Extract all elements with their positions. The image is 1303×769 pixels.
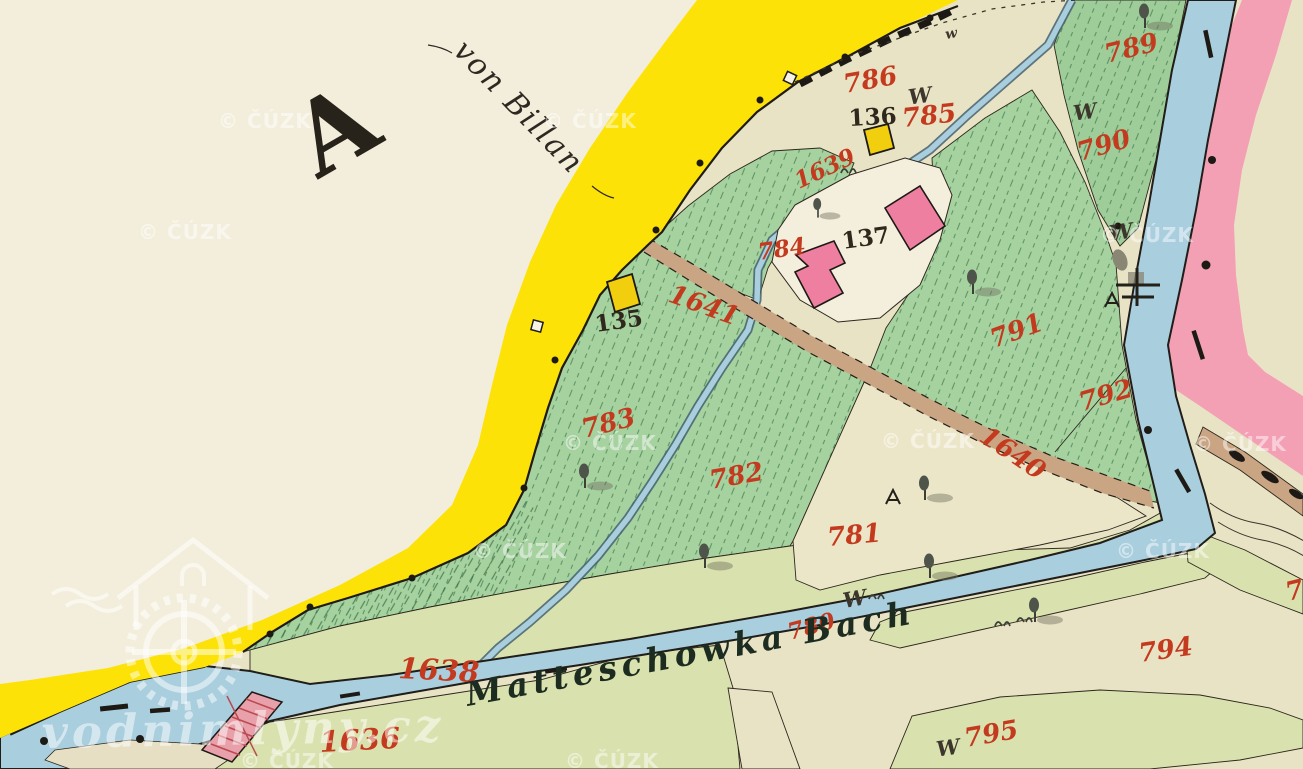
cuzk-watermark: © ČÚZK [1116, 539, 1210, 563]
cuzk-watermark: © ČÚZK [543, 109, 637, 133]
cuzk-watermark: © ČÚZK [138, 220, 232, 244]
cuzk-watermark: © ČÚZK [881, 429, 975, 453]
map-viewer[interactable]: 786 785 789 790 784 791 792 783 782 781 … [0, 0, 1303, 769]
cuzk-watermark: © ČÚZK [565, 749, 659, 769]
cuzk-watermark: © ČÚZK [218, 109, 312, 133]
cuzk-watermark: © ČÚZK [1100, 223, 1194, 247]
boundary-stone-marker [531, 320, 543, 332]
map-canvas: 786 785 789 790 784 791 792 783 782 781 … [0, 0, 1303, 769]
cuzk-watermark: © ČÚZK [1193, 432, 1287, 456]
building-label-136: 136 [848, 103, 897, 132]
parcel-label-781: 781 [826, 518, 883, 553]
cuzk-watermark: © ČÚZK [473, 539, 567, 563]
cuzk-watermark: © ČÚZK [563, 431, 657, 455]
site-watermark: vodnimlyny.cz [41, 699, 444, 759]
